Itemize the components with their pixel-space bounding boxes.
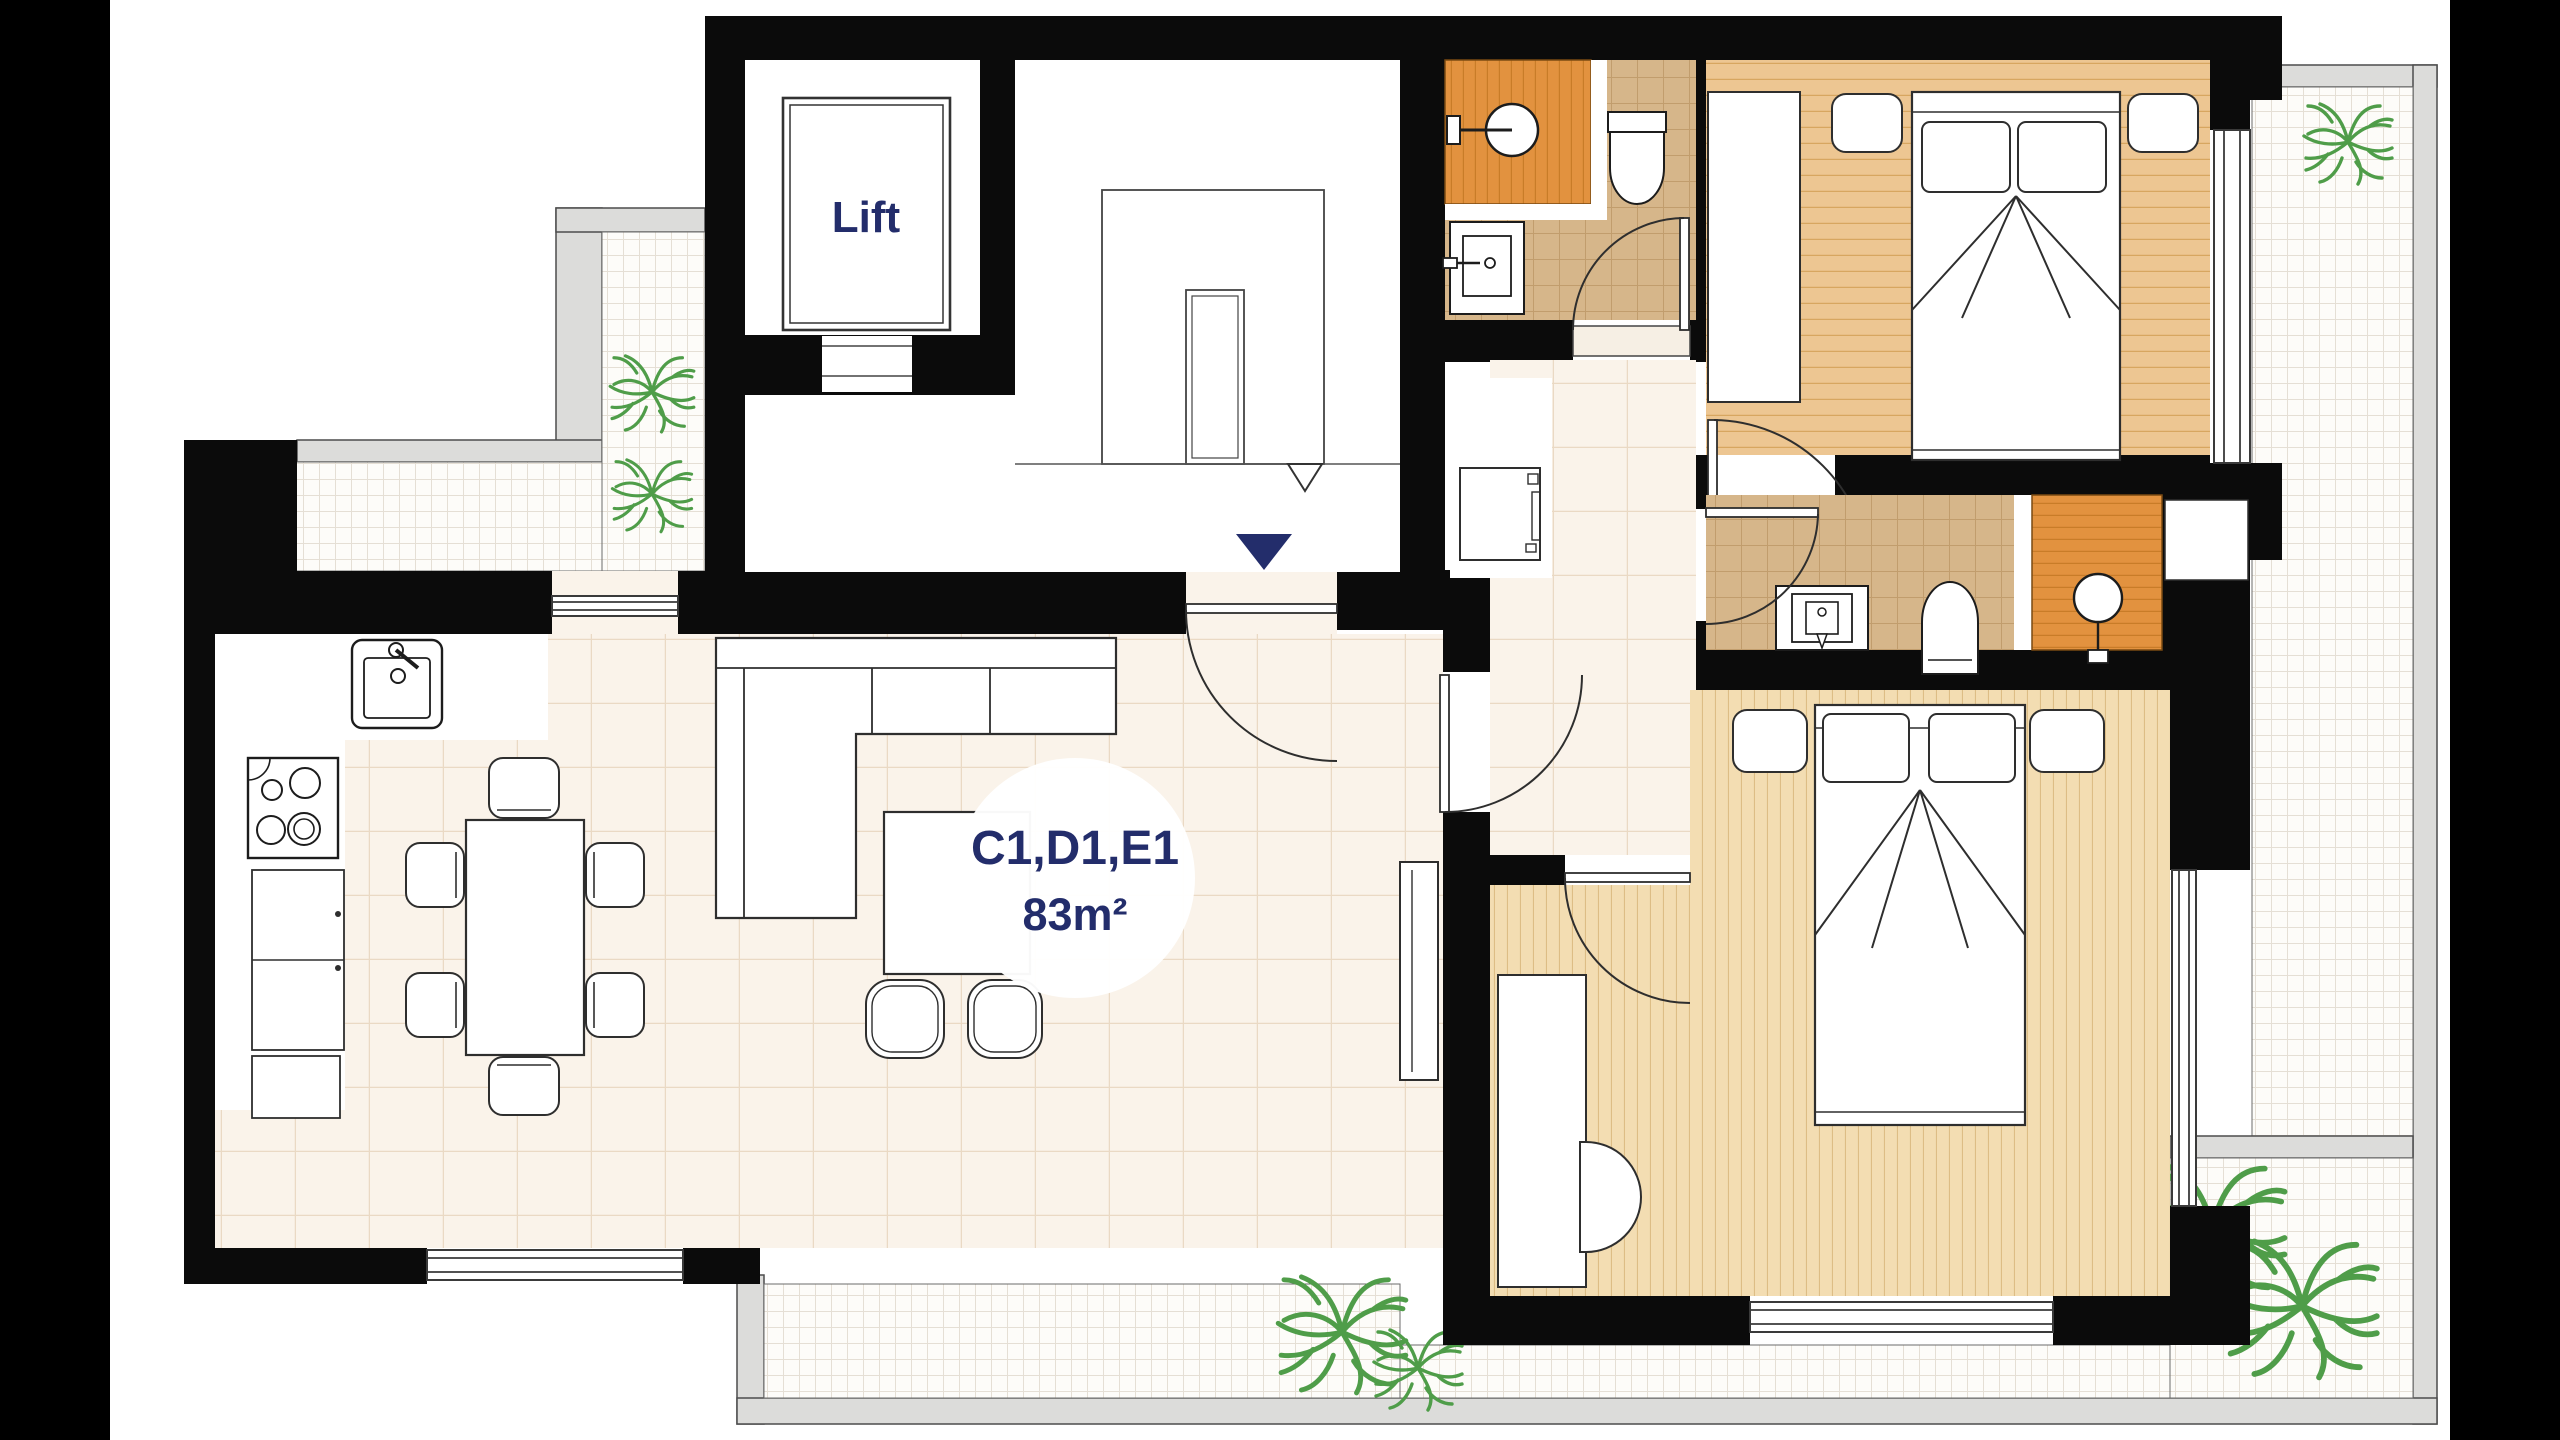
unit-label: C1,D1,E1 — [971, 822, 1179, 875]
closet — [2165, 500, 2248, 580]
door-sill — [1573, 326, 1690, 356]
nightstand — [2128, 94, 2198, 152]
lift-label: Lift — [832, 193, 901, 242]
toilet-icon — [1922, 582, 1978, 674]
door-leaf — [1565, 873, 1690, 882]
nightstand — [2030, 710, 2104, 772]
washbasin-icon — [1776, 586, 1868, 650]
floor-plan-page: Lift C1,D1,E1 83m² — [0, 0, 2560, 1440]
floor-plan-svg: Lift C1,D1,E1 83m² — [0, 0, 2560, 1440]
double-bed — [1912, 92, 2120, 460]
door-leaf — [1680, 218, 1689, 330]
wardrobe — [1708, 92, 1800, 402]
stair-flight — [1186, 290, 1244, 464]
desk — [1498, 975, 1586, 1287]
pillow — [1922, 122, 2010, 192]
tv-console — [1400, 862, 1438, 1080]
pillow — [1823, 714, 1909, 782]
lift-threshold — [822, 336, 912, 392]
dining-chair — [489, 758, 559, 818]
pillow — [2018, 122, 2106, 192]
stove — [248, 758, 338, 858]
unit-badge: C1,D1,E1 83m² — [955, 758, 1195, 998]
area-label: 83m² — [1022, 889, 1127, 940]
bathroom-1 — [1443, 60, 1696, 356]
kitchen-cabinets — [252, 870, 344, 1118]
door-leaf — [1706, 508, 1818, 517]
kitchen-sink — [352, 640, 442, 728]
nightstand — [1733, 710, 1807, 772]
pillow — [1929, 714, 2015, 782]
double-bed — [1815, 705, 2025, 1125]
toilet-icon — [1608, 112, 1666, 204]
washer-column — [1460, 468, 1540, 560]
letterbox-right — [2450, 0, 2560, 1440]
entry-opening-floor — [1186, 572, 1337, 634]
dining-table — [466, 820, 584, 1055]
nightstand — [1832, 94, 1902, 152]
washbasin-icon — [1443, 222, 1524, 314]
letterbox-left — [0, 0, 110, 1440]
